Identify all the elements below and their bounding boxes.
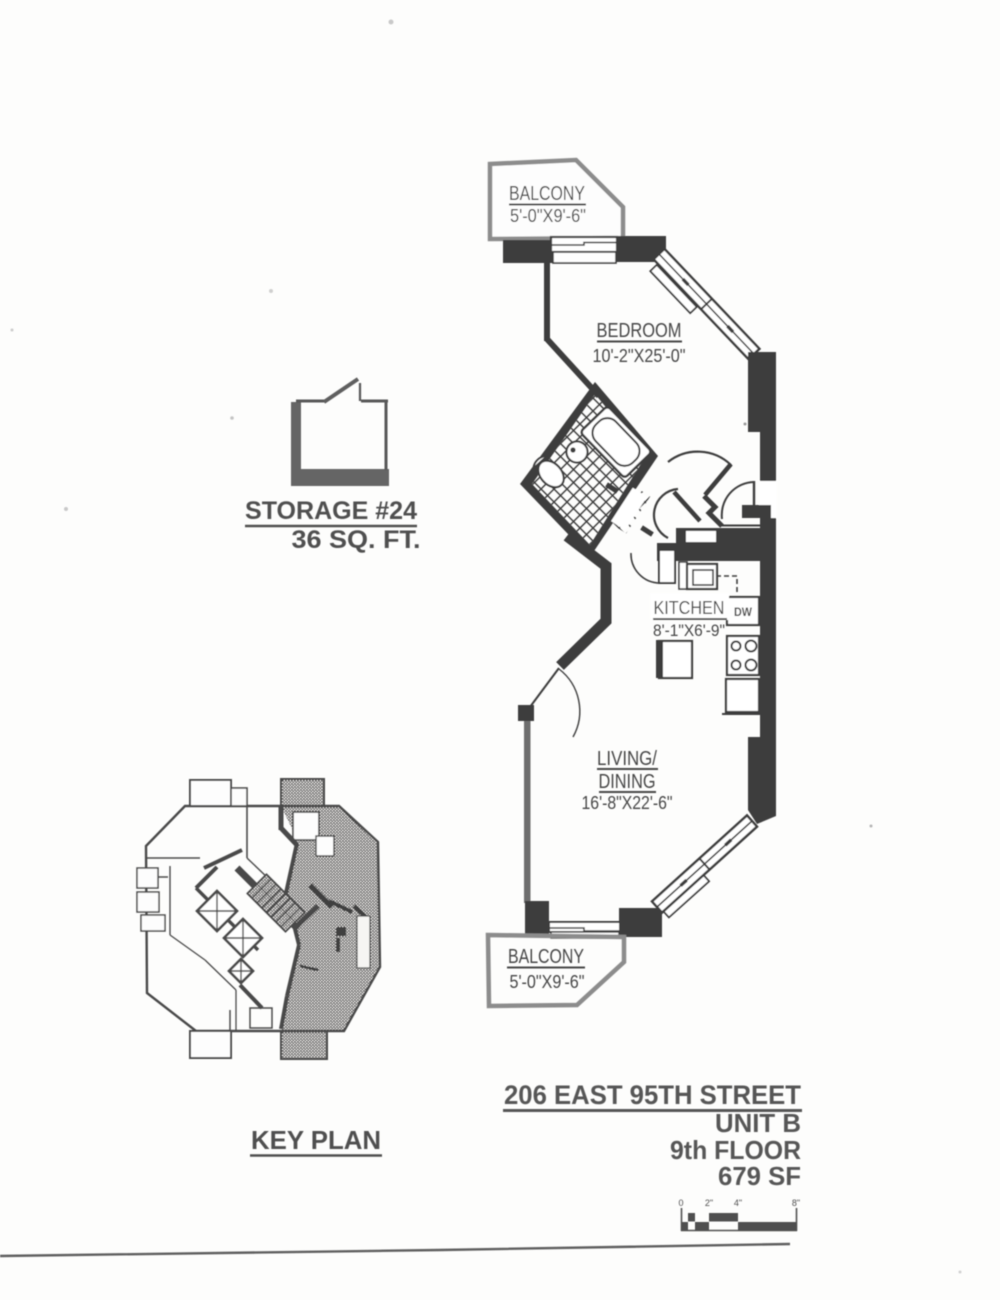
svg-text:36 SQ. FT.: 36 SQ. FT. — [292, 526, 421, 554]
svg-text:DINING: DINING — [599, 771, 656, 793]
svg-text:4": 4" — [734, 1198, 742, 1208]
svg-text:KITCHEN: KITCHEN — [654, 598, 725, 618]
svg-text:LIVING/: LIVING/ — [597, 748, 657, 770]
svg-text:DW: DW — [734, 605, 753, 619]
svg-text:5'-0"X9'-6": 5'-0"X9'-6" — [510, 972, 585, 992]
svg-text:206 EAST 95TH STREET: 206 EAST 95TH STREET — [504, 1080, 801, 1110]
svg-text:8": 8" — [792, 1198, 800, 1208]
svg-text:BALCONY: BALCONY — [508, 946, 584, 968]
svg-text:UNIT B: UNIT B — [715, 1108, 801, 1138]
svg-text:8'-1"X6'-9": 8'-1"X6'-9" — [653, 621, 725, 640]
svg-text:BEDROOM: BEDROOM — [597, 320, 682, 342]
svg-text:16'-8"X22'-6": 16'-8"X22'-6" — [582, 793, 673, 813]
svg-text:0: 0 — [678, 1198, 683, 1208]
svg-text:BALCONY: BALCONY — [509, 183, 585, 205]
svg-text:STORAGE #24: STORAGE #24 — [245, 497, 417, 525]
svg-text:KEY PLAN: KEY PLAN — [251, 1125, 381, 1155]
svg-text:2": 2" — [705, 1198, 713, 1208]
svg-text:5'-0"X9'-6": 5'-0"X9'-6" — [510, 206, 586, 226]
svg-text:10'-2"X25'-0": 10'-2"X25'-0" — [593, 346, 686, 366]
svg-text:679 SF: 679 SF — [718, 1161, 801, 1191]
